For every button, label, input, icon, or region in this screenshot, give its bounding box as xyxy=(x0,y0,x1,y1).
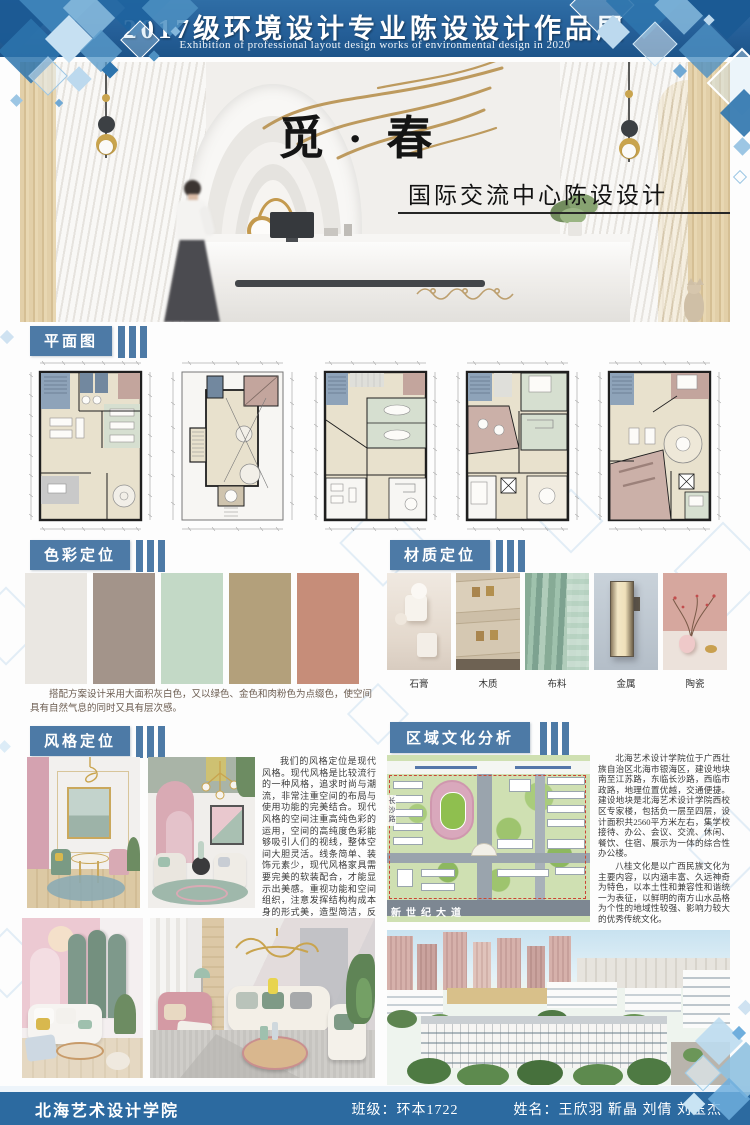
color-swatches xyxy=(25,573,359,684)
culture-text: 北海艺术设计学院位于广西壮族自治区北海市银海区，建设地块南至江苏路，东临长沙路，… xyxy=(598,753,730,927)
floor-plan-4 xyxy=(451,356,584,536)
floor-plans-row xyxy=(24,356,726,536)
hero-underline xyxy=(398,212,730,214)
material-item-fabric: 布料 xyxy=(525,573,589,690)
building-roof xyxy=(421,1016,667,1024)
map-top-band xyxy=(387,761,590,774)
desk-item xyxy=(344,224,352,236)
style-text: 我们的风格定位是现代风格。现代风格是比较流行的一种风格，追求时尚与潮流，非常注重… xyxy=(262,756,376,916)
floor-plan-3 xyxy=(309,356,442,536)
hero-subtitle: 国际交流中心陈设设计 xyxy=(408,176,668,210)
section-header-culture: 区域文化分析 xyxy=(390,722,573,758)
header-bars xyxy=(136,540,169,572)
culture-paragraph-2: 八桂文化是以广西民族文化为主要内容，以内涵丰富、久远神奇为特色，以本土性和兼容性… xyxy=(598,861,730,925)
diamond-decoration-bottom-right xyxy=(672,1020,750,1125)
header-bars xyxy=(496,540,529,572)
color-swatch xyxy=(161,573,223,684)
sports-field xyxy=(447,988,547,1004)
material-label: 木质 xyxy=(456,676,520,690)
gold-squiggle-chandelier xyxy=(232,928,322,964)
style-image-sofa-screen xyxy=(22,918,143,1078)
floor-plan-2 xyxy=(166,356,299,536)
gold-floral-motif xyxy=(415,282,530,300)
color-caption: 搭配方案设计采用大面积灰白色，又以绿色、金色和肉粉色为点缀色，使空间具有自然气息… xyxy=(30,688,378,716)
material-image-gypsum xyxy=(387,573,451,670)
hero-title: 觅 · 春 xyxy=(278,102,508,168)
header-bars xyxy=(136,726,169,758)
desk-monitor xyxy=(270,212,314,238)
footer-bar: 北海艺术设计学院 班级：环本1722 姓名：王欣羽 靳晶 刘倩 刘玉杰 xyxy=(0,1092,750,1125)
color-swatch xyxy=(25,573,87,684)
walking-person xyxy=(158,180,238,322)
material-image-wood xyxy=(456,573,520,670)
map-side-label: 长沙路 xyxy=(387,795,396,826)
header-bars xyxy=(540,722,573,758)
footer-school: 北海艺术设计学院 xyxy=(35,1097,179,1121)
monitor-stand xyxy=(286,238,298,242)
material-label: 布料 xyxy=(525,676,589,690)
material-item-wood: 木质 xyxy=(456,573,520,690)
map-site-boundary xyxy=(389,775,586,899)
site-map: 新世纪大道 长沙路 xyxy=(387,755,590,922)
light-globe xyxy=(99,140,113,154)
material-image-ceramic xyxy=(663,573,727,670)
section-header-color: 色彩定位 xyxy=(30,540,169,572)
diamond-decoration-top-left xyxy=(0,0,225,140)
section-title-box: 区域文化分析 xyxy=(390,722,530,753)
section-title-box: 风格定位 xyxy=(30,726,130,756)
material-image-fabric xyxy=(525,573,589,670)
style-image-lounge xyxy=(148,757,255,908)
section-header-plan: 平面图 xyxy=(30,326,151,358)
desk-item xyxy=(324,228,338,236)
poster-page: 2017级环境设计专业陈设设计作品展 Exhibition of profess… xyxy=(0,0,750,1125)
style-image-dining xyxy=(27,757,140,908)
material-label: 陶瓷 xyxy=(663,676,727,690)
culture-paragraph-1: 北海艺术设计学院位于广西壮族自治区北海市银海区，建设地块南至江苏路，东临长沙路，… xyxy=(598,753,730,859)
material-image-metal xyxy=(594,573,658,670)
color-swatch xyxy=(93,573,155,684)
section-title-box: 材质定位 xyxy=(390,540,490,570)
material-item-gypsum: 石膏 xyxy=(387,573,451,690)
material-label: 石膏 xyxy=(387,676,451,690)
diamond-decoration-top-right xyxy=(575,0,750,150)
branch-decor xyxy=(669,581,721,641)
floor-plan-1 xyxy=(24,356,157,536)
color-swatch xyxy=(229,573,291,684)
header-bars xyxy=(118,326,151,358)
map-road-label: 新世纪大道 xyxy=(391,904,466,919)
footer-class: 班级：环本1722 xyxy=(352,1099,459,1119)
section-header-style: 风格定位 xyxy=(30,726,169,758)
material-items: 石膏 木质 布料 金属 xyxy=(387,573,727,690)
style-image-living xyxy=(150,918,375,1078)
section-title-box: 平面图 xyxy=(30,326,112,356)
section-title-box: 色彩定位 xyxy=(30,540,130,570)
section-header-material: 材质定位 xyxy=(390,540,529,572)
material-item-metal: 金属 xyxy=(594,573,658,690)
floor-plan-5 xyxy=(593,356,726,536)
material-label: 金属 xyxy=(594,676,658,690)
color-swatch xyxy=(297,573,359,684)
gold-pendant xyxy=(75,757,105,791)
material-item-ceramic: 陶瓷 xyxy=(663,573,727,690)
